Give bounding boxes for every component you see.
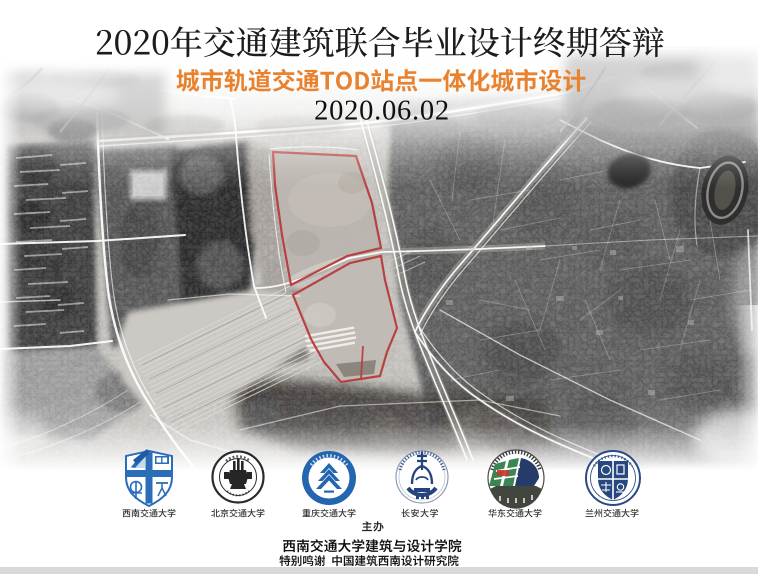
svg-text:2020.06.02: 2020.06.02 — [314, 96, 450, 127]
